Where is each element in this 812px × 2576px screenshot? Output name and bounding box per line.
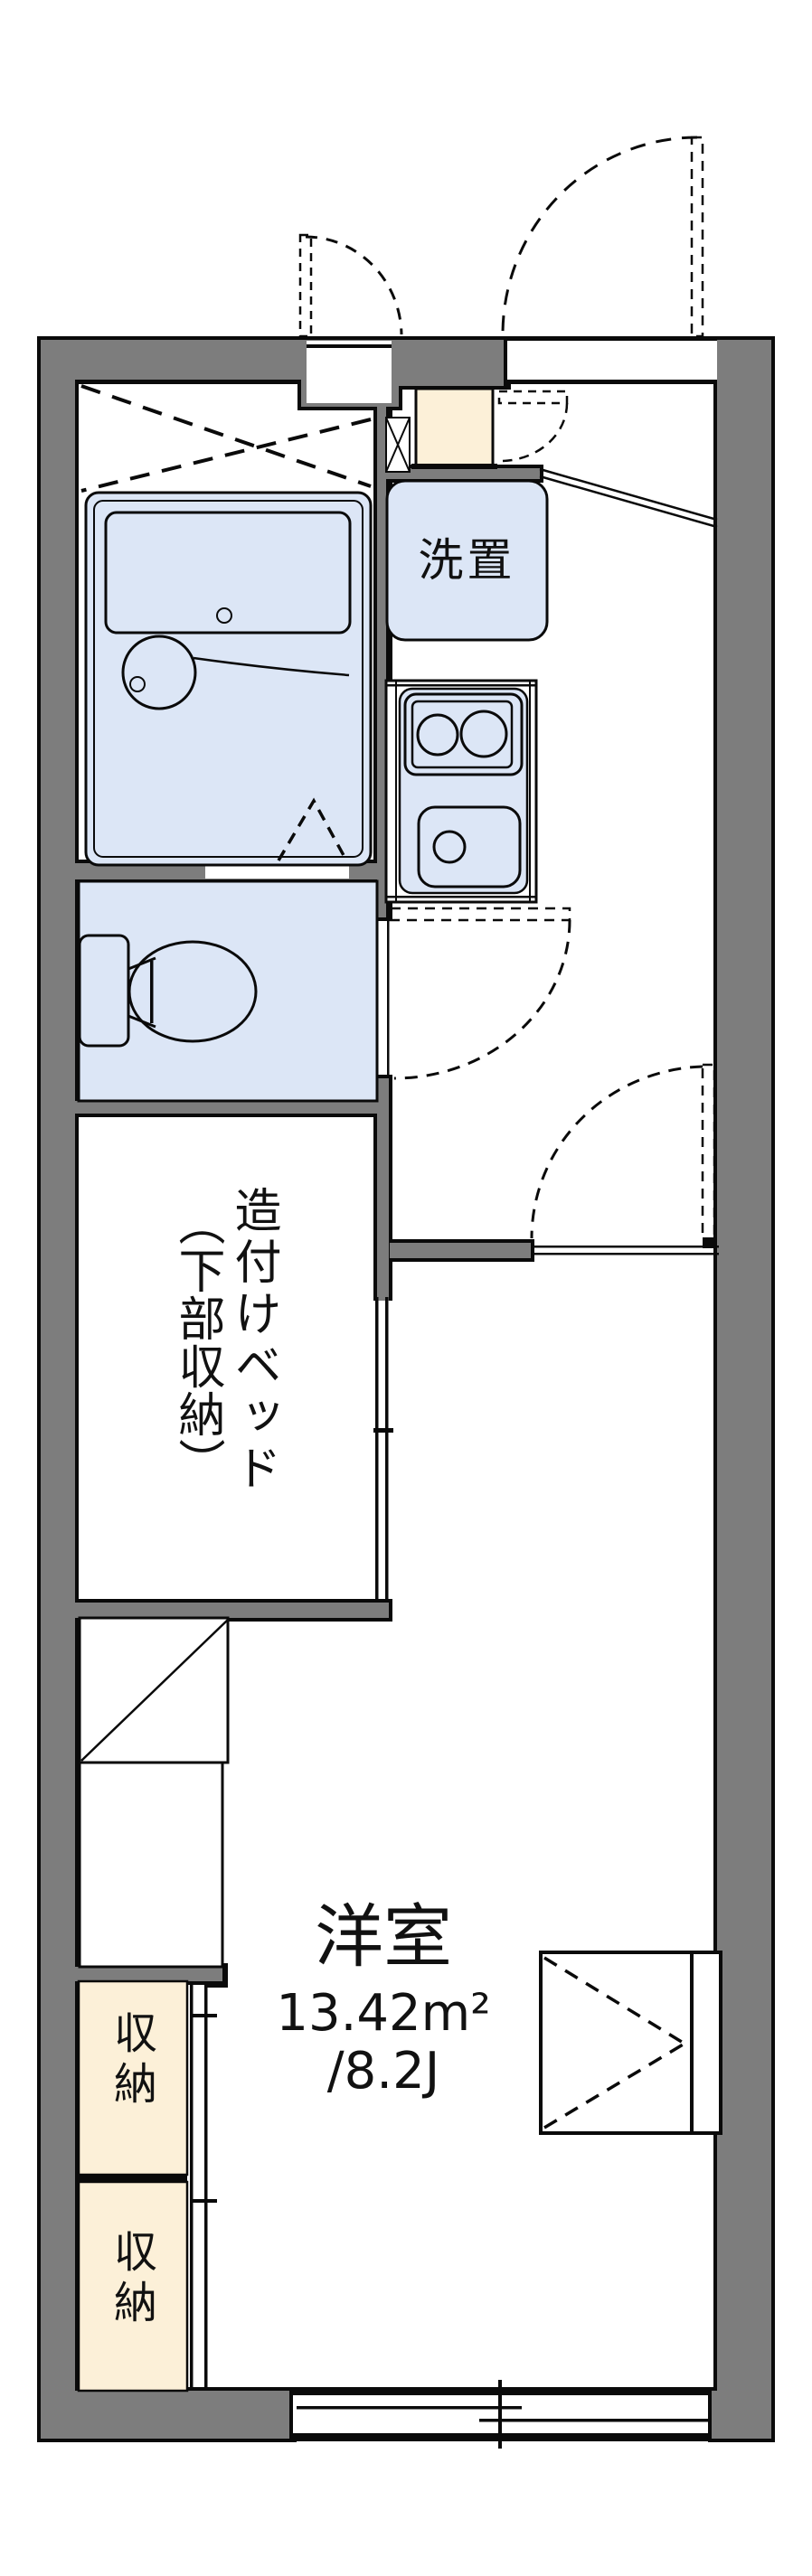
shoe-cabinet — [416, 389, 493, 465]
counter-boxes — [80, 1618, 228, 1967]
thin-lines — [297, 1246, 719, 2449]
room-door-swing-arc-icon — [532, 1067, 703, 1238]
entry-niche — [307, 341, 392, 403]
bath-washbowl-icon — [123, 636, 195, 709]
room-door-leaf — [703, 1065, 714, 1240]
entrance-door-swing-arc-icon — [503, 137, 697, 334]
plain-box — [80, 1763, 222, 1967]
room-area-sqm-label: 13.42m² — [266, 1987, 501, 2041]
storage-lower-label: 収納 — [106, 2229, 156, 2346]
floorplan: 洗置 造付けベッド （下部収納） 洋室 13.42m² /8.2J 収納 収納 — [0, 0, 812, 2576]
floorplan-drawing — [0, 0, 812, 2576]
genkan-step-line — [540, 469, 717, 527]
genkan-door-swing-arc-icon — [503, 403, 567, 461]
room-name-label: 洋室 — [266, 1898, 501, 1976]
burner-left-icon — [418, 715, 458, 755]
bed-label-line1: 造付けベッド — [228, 1186, 279, 1511]
bed-label-line2: （下部収納） — [172, 1199, 222, 1506]
laundry-label: 洗置 — [387, 481, 547, 640]
niche-door-leaf — [300, 235, 311, 336]
bed-partition — [373, 1297, 393, 1603]
toilet-bowl — [129, 942, 256, 1041]
toilet-tank — [80, 935, 128, 1046]
genkan-door-leaf — [499, 391, 567, 403]
storage-upper-label: 収納 — [106, 2010, 156, 2119]
toilet-door-swing-arc-icon — [394, 920, 570, 1078]
toilet-door-leaf — [391, 908, 570, 920]
faucet-icon — [434, 832, 465, 862]
bath-drain-icon — [217, 608, 231, 623]
entrance-door-leaf — [692, 137, 703, 336]
entrance-opening — [507, 341, 717, 380]
room-area-jo-label: /8.2J — [266, 2045, 501, 2099]
pipe-space — [386, 418, 410, 472]
niche-door-swing-arc-icon — [306, 237, 401, 334]
burner-right-icon — [461, 711, 506, 757]
room-window-box — [541, 1952, 721, 2133]
